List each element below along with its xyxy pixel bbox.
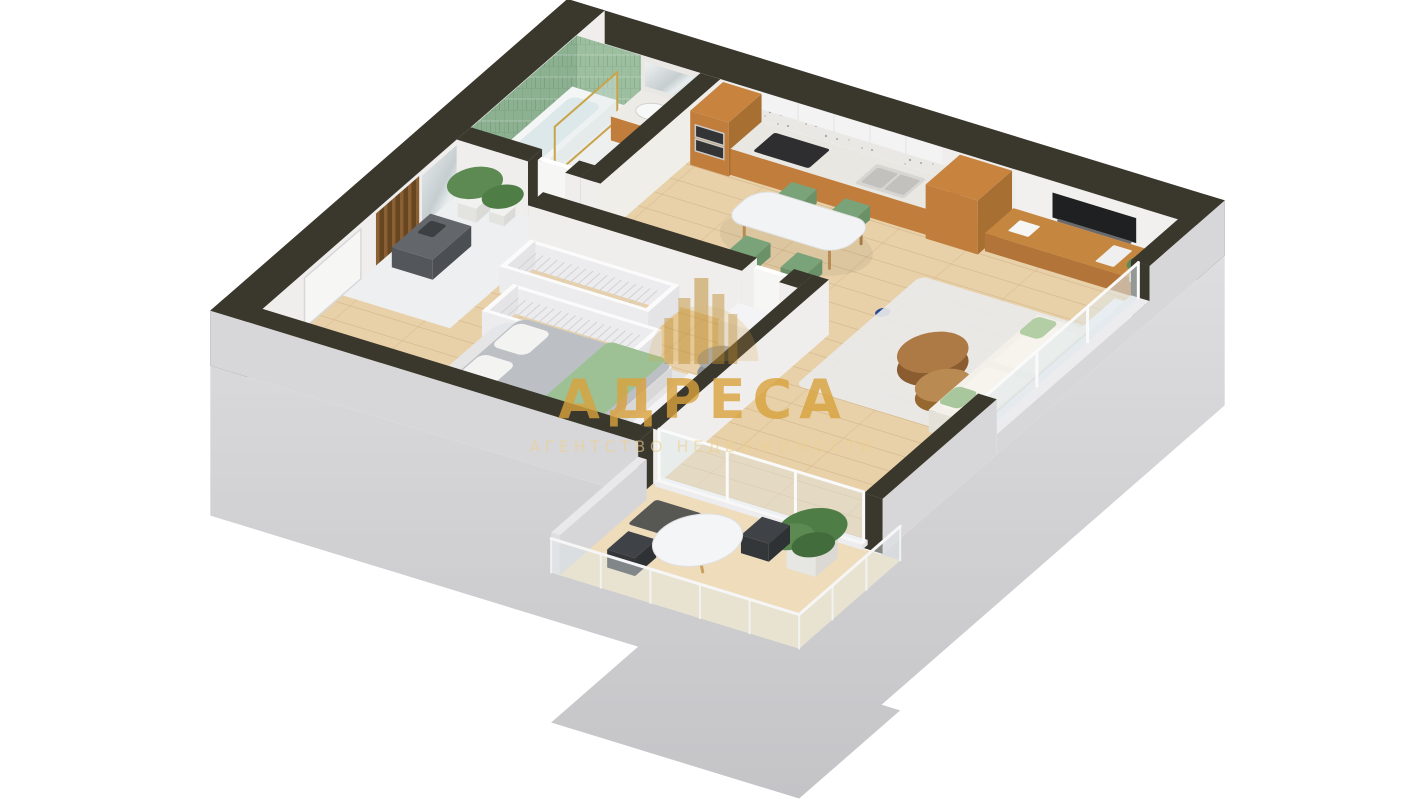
floorplan-svg [0,0,1422,800]
floorplan-render: АДРЕСА АГЕНТСТВО НЕДВИЖИМОСТИ [0,0,1422,800]
